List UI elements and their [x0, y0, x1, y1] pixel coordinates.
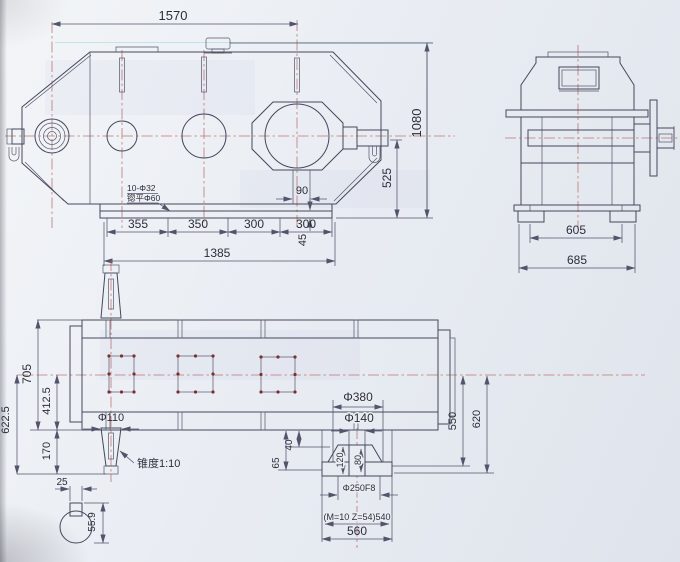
dim-1080: 1080	[409, 109, 424, 138]
dim-170: 170	[41, 442, 53, 460]
input-shaft-top	[101, 265, 121, 318]
split-flange	[506, 110, 648, 117]
plan-view: 锥度1:10	[17, 260, 645, 548]
drawing-canvas: 10-Φ32 锪平Φ60 1570 1080 525 45 90 355 350…	[0, 0, 680, 562]
dim-622-5: 622.5	[0, 406, 12, 434]
keyway	[70, 503, 82, 516]
dim-605: 605	[566, 223, 586, 237]
dim-350: 350	[188, 217, 208, 231]
bearing-cap	[343, 127, 357, 149]
dim-phi380: Φ380	[343, 390, 373, 404]
drawing-sheet: 10-Φ32 锪平Φ60 1570 1080 525 45 90 355 350…	[0, 0, 680, 562]
dim-525: 525	[380, 168, 394, 188]
side-foot-left	[518, 211, 544, 222]
coupling-section: 120 80 Φ250F8 (M=10 Z=54)540 560	[320, 430, 398, 542]
side-foot-right	[610, 211, 636, 222]
dim-685: 685	[567, 253, 587, 267]
hole-note-line2: 锪平Φ60	[127, 193, 161, 203]
side-base-plate	[514, 205, 640, 211]
plan-right-step	[438, 330, 450, 424]
shaft-key-section: 25 55.9	[55, 477, 109, 543]
dim-560: 560	[347, 524, 367, 538]
dim-1385: 1385	[204, 246, 231, 260]
dim-25: 25	[56, 477, 68, 488]
upper-housing	[521, 57, 634, 110]
dim-80: 80	[353, 455, 363, 465]
dim-550: 550	[447, 412, 459, 430]
plan-left-step	[70, 326, 82, 422]
dim-phi110: Φ110	[98, 412, 124, 424]
plan-centerlines	[17, 260, 645, 548]
dim-300b: 300	[296, 217, 316, 231]
gear-note-540: (M=10 Z=54)540	[323, 512, 390, 522]
output-shaft-stub	[357, 130, 388, 146]
dim-65: 65	[271, 457, 282, 469]
side-dimensions: 605 685	[519, 223, 635, 273]
input-hook	[9, 147, 19, 161]
scan-ghost	[45, 60, 255, 115]
front-dimensions: 1570 1080 525 45 90 355 350 300 300 1385	[52, 8, 433, 266]
dim-120: 120	[335, 452, 345, 467]
dim-355: 355	[128, 217, 148, 231]
dim-620: 620	[471, 410, 483, 428]
taper-note: 锥度1:10	[137, 456, 180, 470]
hole-callout: 10-Φ32 锪平Φ60	[127, 183, 170, 211]
scan-ghost	[240, 170, 430, 208]
breather-cap	[204, 38, 232, 53]
dim-1570: 1570	[159, 8, 188, 23]
dim-90: 90	[296, 185, 308, 197]
dim-phi140: Φ140	[344, 411, 374, 425]
dim-45: 45	[297, 234, 309, 246]
side-centerlines	[505, 45, 678, 228]
dim-705: 705	[20, 364, 34, 384]
dim-55-9: 55.9	[87, 512, 98, 532]
side-view	[505, 45, 678, 228]
dim-412-5: 412.5	[41, 387, 53, 415]
hole-note-line1: 10-Φ32	[127, 183, 156, 193]
dim-phi250f8: Φ250F8	[343, 483, 376, 493]
dim-300a: 300	[244, 217, 264, 231]
